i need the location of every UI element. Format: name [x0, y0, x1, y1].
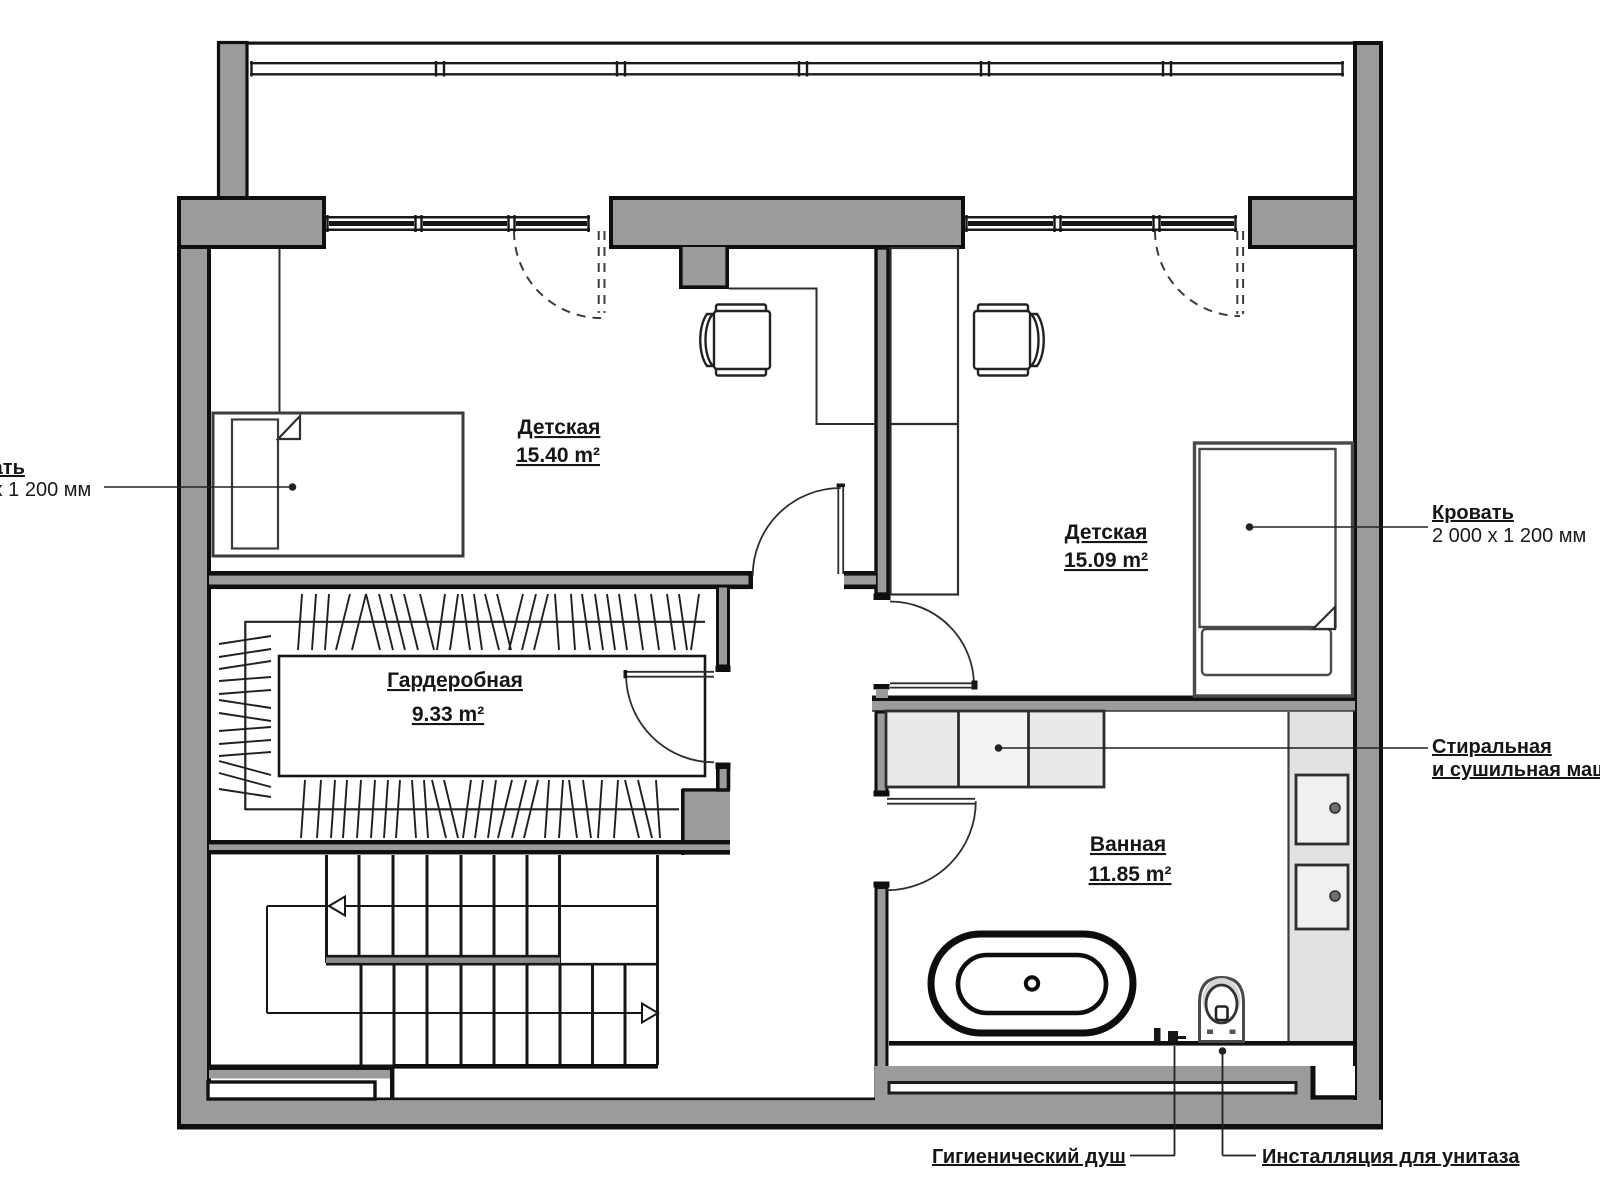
svg-text:Детская: Детская: [518, 416, 601, 439]
svg-text:и сушильная маши: и сушильная маши: [1432, 759, 1600, 781]
svg-text:9.33 m²: 9.33 m²: [412, 703, 484, 726]
svg-text:15.40 m²: 15.40 m²: [516, 444, 600, 467]
svg-text:2 000 х 1 200 мм: 2 000 х 1 200 мм: [1432, 525, 1586, 547]
svg-text:15.09 m²: 15.09 m²: [1064, 549, 1148, 572]
svg-text:Кровать: Кровать: [1432, 502, 1514, 524]
svg-text:Гардеробная: Гардеробная: [387, 669, 523, 692]
svg-text:Инсталляция для унитаза: Инсталляция для унитаза: [1262, 1146, 1520, 1168]
svg-text:11.85 m²: 11.85 m²: [1089, 863, 1172, 886]
svg-text:Гигиенический душ: Гигиенический душ: [932, 1146, 1126, 1168]
svg-text:Детская: Детская: [1065, 521, 1148, 544]
svg-text:Стиральная: Стиральная: [1432, 736, 1552, 758]
svg-text:2 000 х 1 200 мм: 2 000 х 1 200 мм: [0, 479, 91, 501]
svg-text:Ванная: Ванная: [1090, 833, 1166, 856]
svg-text:Кровать: Кровать: [0, 457, 25, 479]
